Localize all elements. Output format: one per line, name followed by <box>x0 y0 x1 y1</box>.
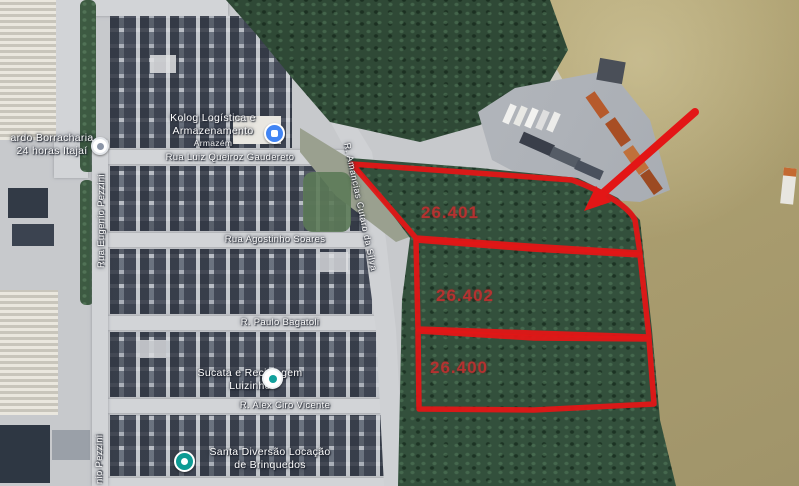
sucata-line1: Sucata e Reciclagem <box>198 367 303 379</box>
parcel-label-26401: 26.401 <box>405 203 495 223</box>
satellite-map-canvas[interactable]: 26.401 26.402 26.400 Rua Luiz Queiroz Ga… <box>0 0 799 486</box>
grass-field <box>303 172 351 232</box>
industrial-roof-dark <box>0 425 50 483</box>
white-roof <box>140 340 166 358</box>
pin-box-icon <box>271 130 278 137</box>
place-label-borracharia[interactable]: ardo Borracharia 24 horas Itajaí <box>0 132 104 157</box>
street-label-gaudereto: Rua Luiz Queiroz Gaudereto <box>130 152 330 163</box>
white-roof <box>320 252 348 272</box>
parcel-label-26400: 26.400 <box>414 358 504 378</box>
industrial-roof <box>52 430 90 460</box>
street-label-vicente: R. Alex Ciro Vicente <box>185 400 385 411</box>
street-label-soares: Rua Agostinho Soares <box>175 234 375 245</box>
santa-line2: de Brinquedos <box>234 459 306 471</box>
sucata-place-pin-icon[interactable] <box>262 368 283 389</box>
street-bottom <box>106 478 402 486</box>
borracharia-line1: ardo Borracharia <box>10 132 93 144</box>
industrial-roof <box>12 224 54 246</box>
pin-dot-icon <box>97 143 104 150</box>
place-label-kolog[interactable]: Kolog Logística e Armazenamento Armazém <box>158 112 268 150</box>
kolog-line2: Armazenamento <box>173 125 254 137</box>
dock-structure <box>596 58 625 84</box>
street-label-pezzini-partial: nio Pezzini <box>94 404 105 484</box>
place-label-santa[interactable]: Santa Diversão Locação de Brinquedos <box>175 446 365 471</box>
kolog-logistics-pin-icon[interactable] <box>264 123 285 144</box>
street-label-pezzini: Rua Eugenio Pezzini <box>96 158 107 268</box>
kolog-sub: Armazém <box>158 137 268 150</box>
warehouse-roof-white <box>0 290 58 415</box>
santa-line1: Santa Diversão Locação <box>209 446 330 458</box>
white-roof <box>150 55 176 73</box>
santa-store-pin-icon[interactable] <box>174 451 195 472</box>
borracharia-line2: 24 horas Itajaí <box>16 145 87 157</box>
pin-dot-icon <box>181 458 188 465</box>
place-label-sucata[interactable]: Sucata e Reciclagem Luizinho <box>155 367 345 392</box>
parcel-label-26402: 26.402 <box>420 286 510 306</box>
pin-dot-icon <box>269 375 277 383</box>
kolog-line1: Kolog Logística e <box>170 112 256 124</box>
industrial-roof <box>8 188 48 218</box>
borracharia-place-pin-icon[interactable] <box>91 137 109 155</box>
warehouse-roof-large <box>0 0 56 140</box>
street-label-bagatoli: R. Paulo Bagatoli <box>180 317 380 328</box>
